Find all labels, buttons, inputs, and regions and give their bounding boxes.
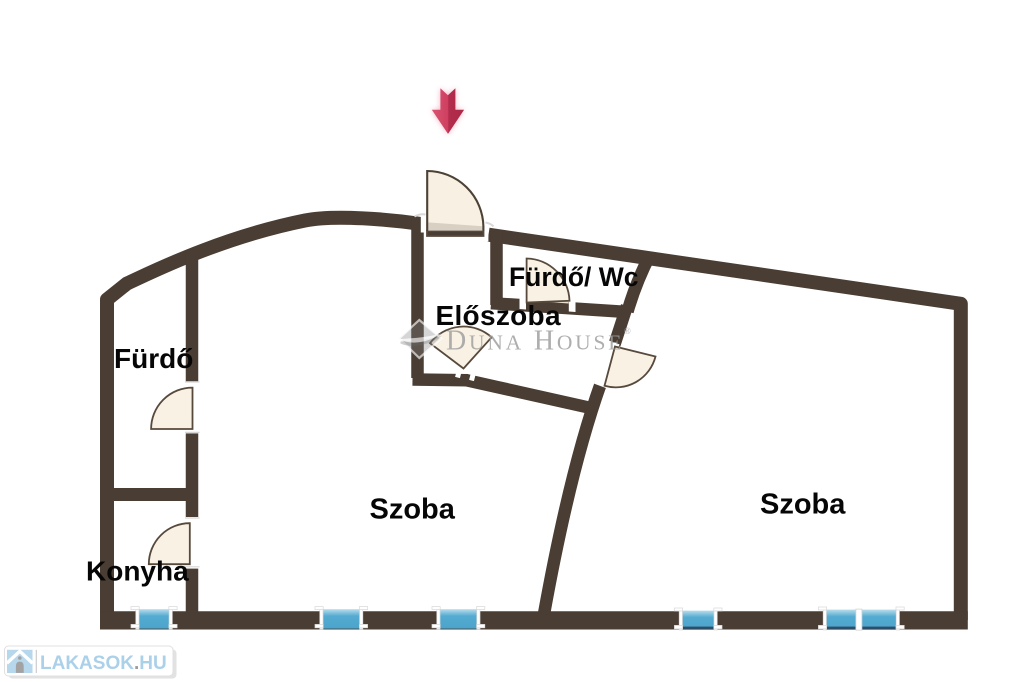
svg-text:Konyha: Konyha xyxy=(86,556,189,587)
svg-text:®: ® xyxy=(624,326,631,336)
svg-text:Fürdő/ Wc: Fürdő/ Wc xyxy=(509,262,639,292)
svg-text:LAKASOK.HU: LAKASOK.HU xyxy=(40,653,167,674)
svg-text:Előszoba: Előszoba xyxy=(436,300,561,331)
svg-text:Fürdő: Fürdő xyxy=(114,343,193,374)
svg-text:Szoba: Szoba xyxy=(760,489,846,521)
svg-text:Szoba: Szoba xyxy=(370,494,456,526)
